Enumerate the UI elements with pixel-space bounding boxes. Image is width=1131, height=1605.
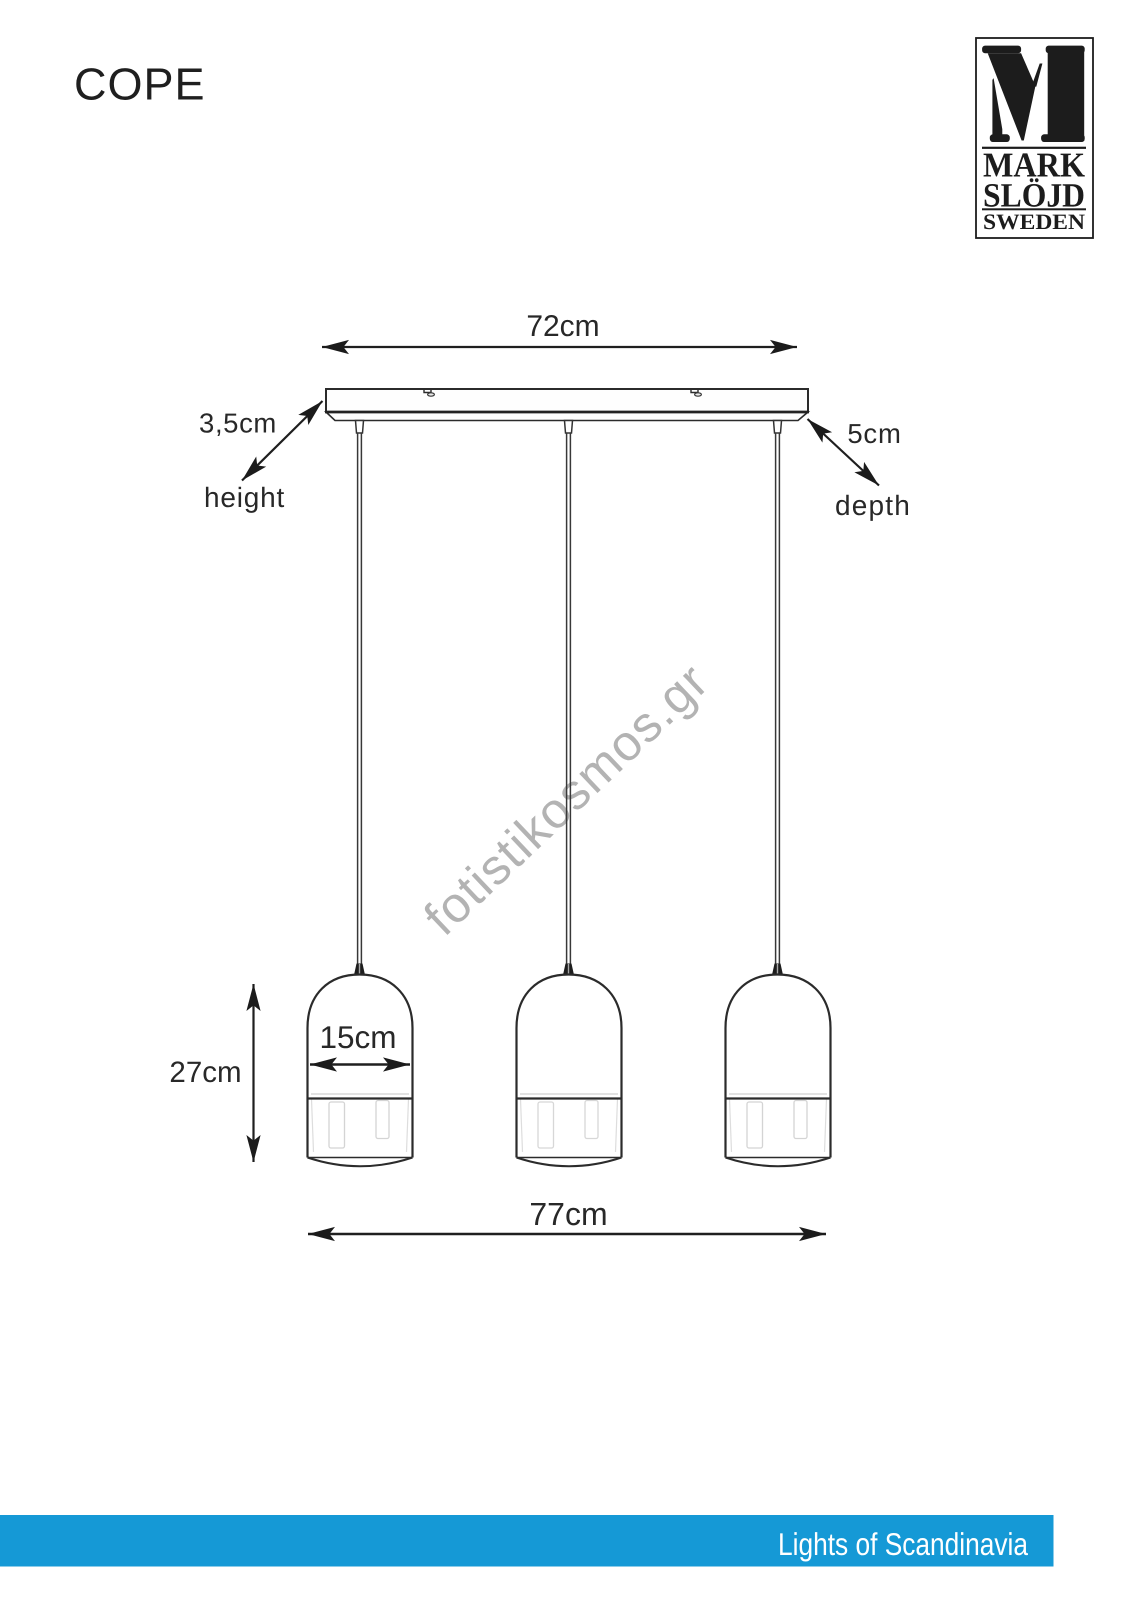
svg-text:15cm: 15cm [319, 1019, 396, 1055]
svg-text:77cm: 77cm [529, 1196, 607, 1232]
svg-text:height: height [204, 482, 285, 513]
svg-text:depth: depth [835, 490, 911, 521]
svg-text:27cm: 27cm [169, 1056, 241, 1089]
svg-text:COPE: COPE [74, 59, 206, 110]
svg-text:72cm: 72cm [526, 310, 599, 343]
svg-text:Lights of Scandinavia: Lights of Scandinavia [778, 1526, 1028, 1562]
svg-text:5cm: 5cm [847, 418, 901, 449]
svg-text:SWEDEN: SWEDEN [983, 209, 1085, 234]
svg-text:3,5cm: 3,5cm [199, 408, 277, 439]
